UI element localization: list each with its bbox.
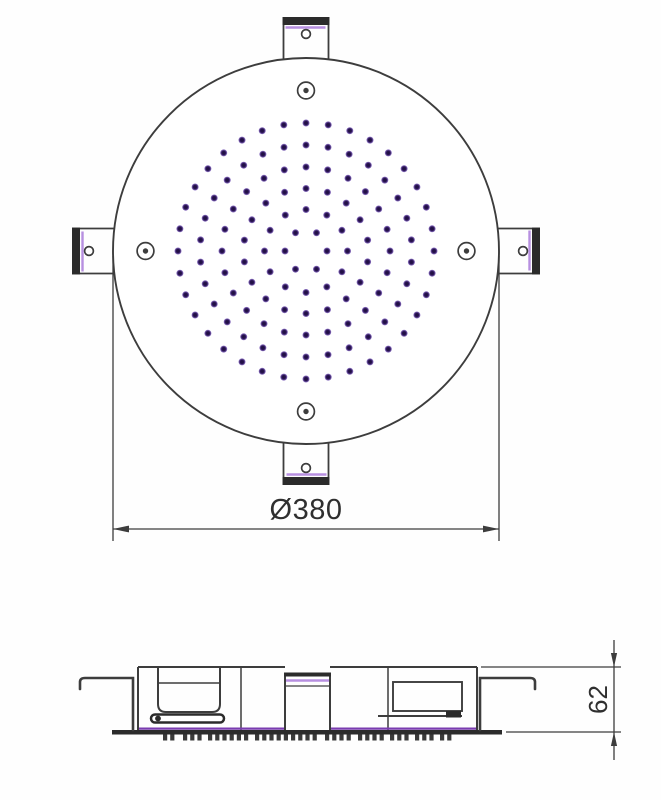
mounting-hook-right [480, 678, 535, 730]
dim-arrow-left [113, 526, 129, 533]
filter-slot [151, 715, 224, 723]
dim-arrow-right [483, 526, 499, 533]
tab-hole [302, 30, 311, 39]
mounting-tab-bottom [283, 442, 330, 485]
inlet-pipe [284, 673, 331, 731]
tab-hole [519, 247, 528, 256]
mounting-tab-right [497, 228, 540, 275]
top-view: Ø380 [72, 17, 540, 541]
tab-hole [85, 247, 94, 256]
mounting-hook-left [80, 678, 133, 730]
drawing-page: Ø38062 [0, 0, 661, 800]
shower-face-circle [113, 58, 499, 444]
bottom-plate [112, 730, 502, 735]
tab-bar [532, 228, 540, 275]
tab-bar [283, 477, 330, 485]
diameter-label: Ø380 [270, 494, 343, 526]
mounting-tab-top [283, 17, 330, 60]
tab-bar [72, 228, 80, 275]
mounting-tab-left [72, 228, 115, 275]
right-bracket [378, 682, 462, 718]
tab-bar [283, 17, 330, 25]
height-dimension: 62 [481, 640, 621, 760]
dim-arrow-bottom [611, 732, 617, 746]
nozzle-teeth [163, 735, 451, 741]
tab-hole [302, 464, 311, 473]
dim-arrow-top [611, 653, 617, 667]
height-label: 62 [583, 685, 613, 714]
shower-head-technical-drawing: Ø38062 [0, 0, 661, 800]
left-pocket [158, 667, 220, 712]
side-view: 62 [80, 640, 621, 760]
